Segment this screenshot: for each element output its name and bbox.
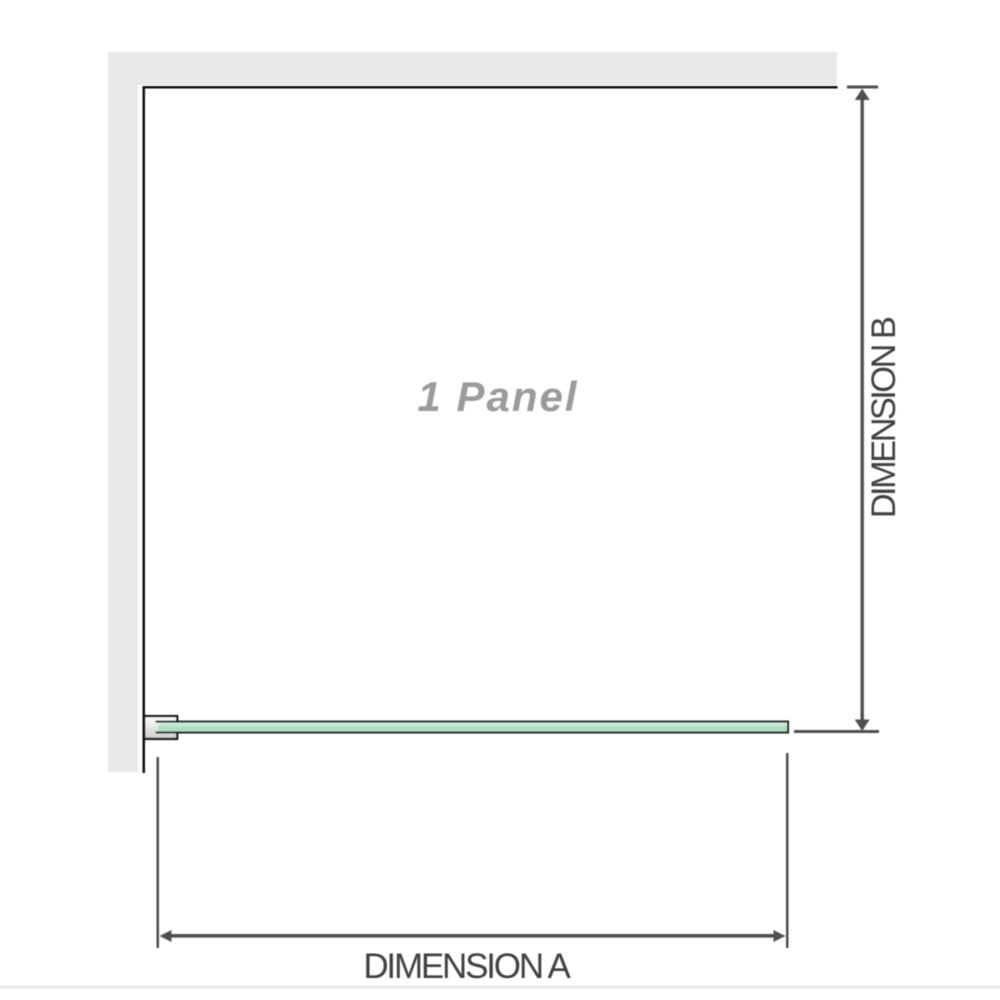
- svg-text:DIMENSION A: DIMENSION A: [363, 947, 571, 986]
- svg-text:1 Panel: 1 Panel: [417, 373, 578, 420]
- svg-text:DIMENSION B: DIMENSION B: [865, 317, 903, 518]
